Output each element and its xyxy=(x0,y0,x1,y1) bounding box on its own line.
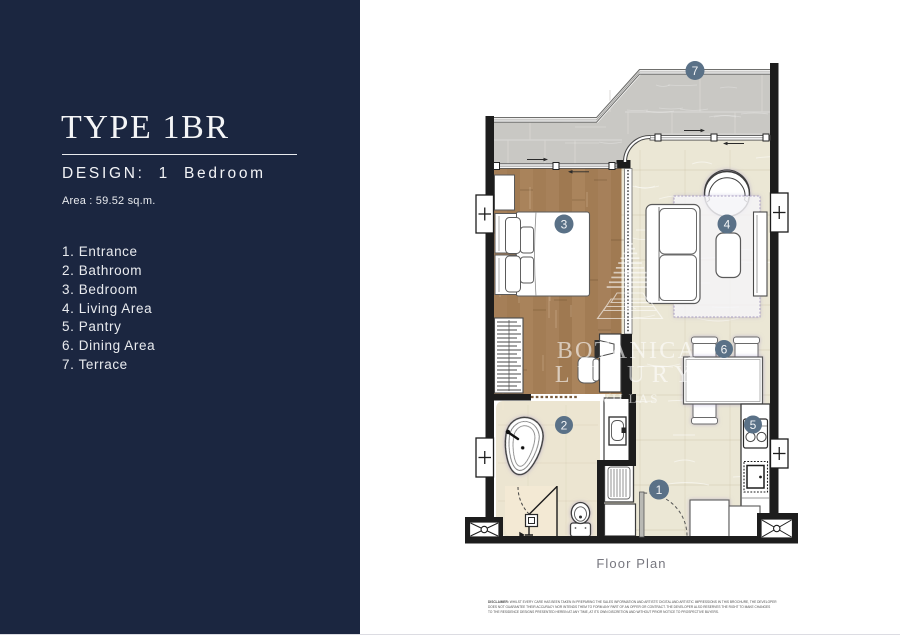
svg-text:3: 3 xyxy=(561,218,568,232)
svg-text:5: 5 xyxy=(750,418,757,432)
svg-text:LUXURY: LUXURY xyxy=(555,362,699,388)
svg-text:2: 2 xyxy=(561,419,568,433)
svg-text:7: 7 xyxy=(692,64,699,78)
svg-text:Floor Plan: Floor Plan xyxy=(596,556,666,571)
svg-text:6: 6 xyxy=(721,343,728,357)
svg-text:DOES NOT GUARANTEE THEIR ACCUR: DOES NOT GUARANTEE THEIR ACCURACY NOR IN… xyxy=(488,605,770,609)
svg-text:TO THE RESIDENCE DESIGNS PRESE: TO THE RESIDENCE DESIGNS PRESENTED HEREI… xyxy=(488,610,719,614)
svg-text:BOTANICA: BOTANICA xyxy=(557,338,697,364)
svg-text:DISCLAIMER: WHILST EVERY CARE: DISCLAIMER: WHILST EVERY CARE HAS BEEN T… xyxy=(488,600,777,604)
svg-text:1: 1 xyxy=(656,483,663,497)
svg-text:4: 4 xyxy=(724,218,731,232)
svg-text:VILLAS: VILLAS xyxy=(600,391,659,406)
